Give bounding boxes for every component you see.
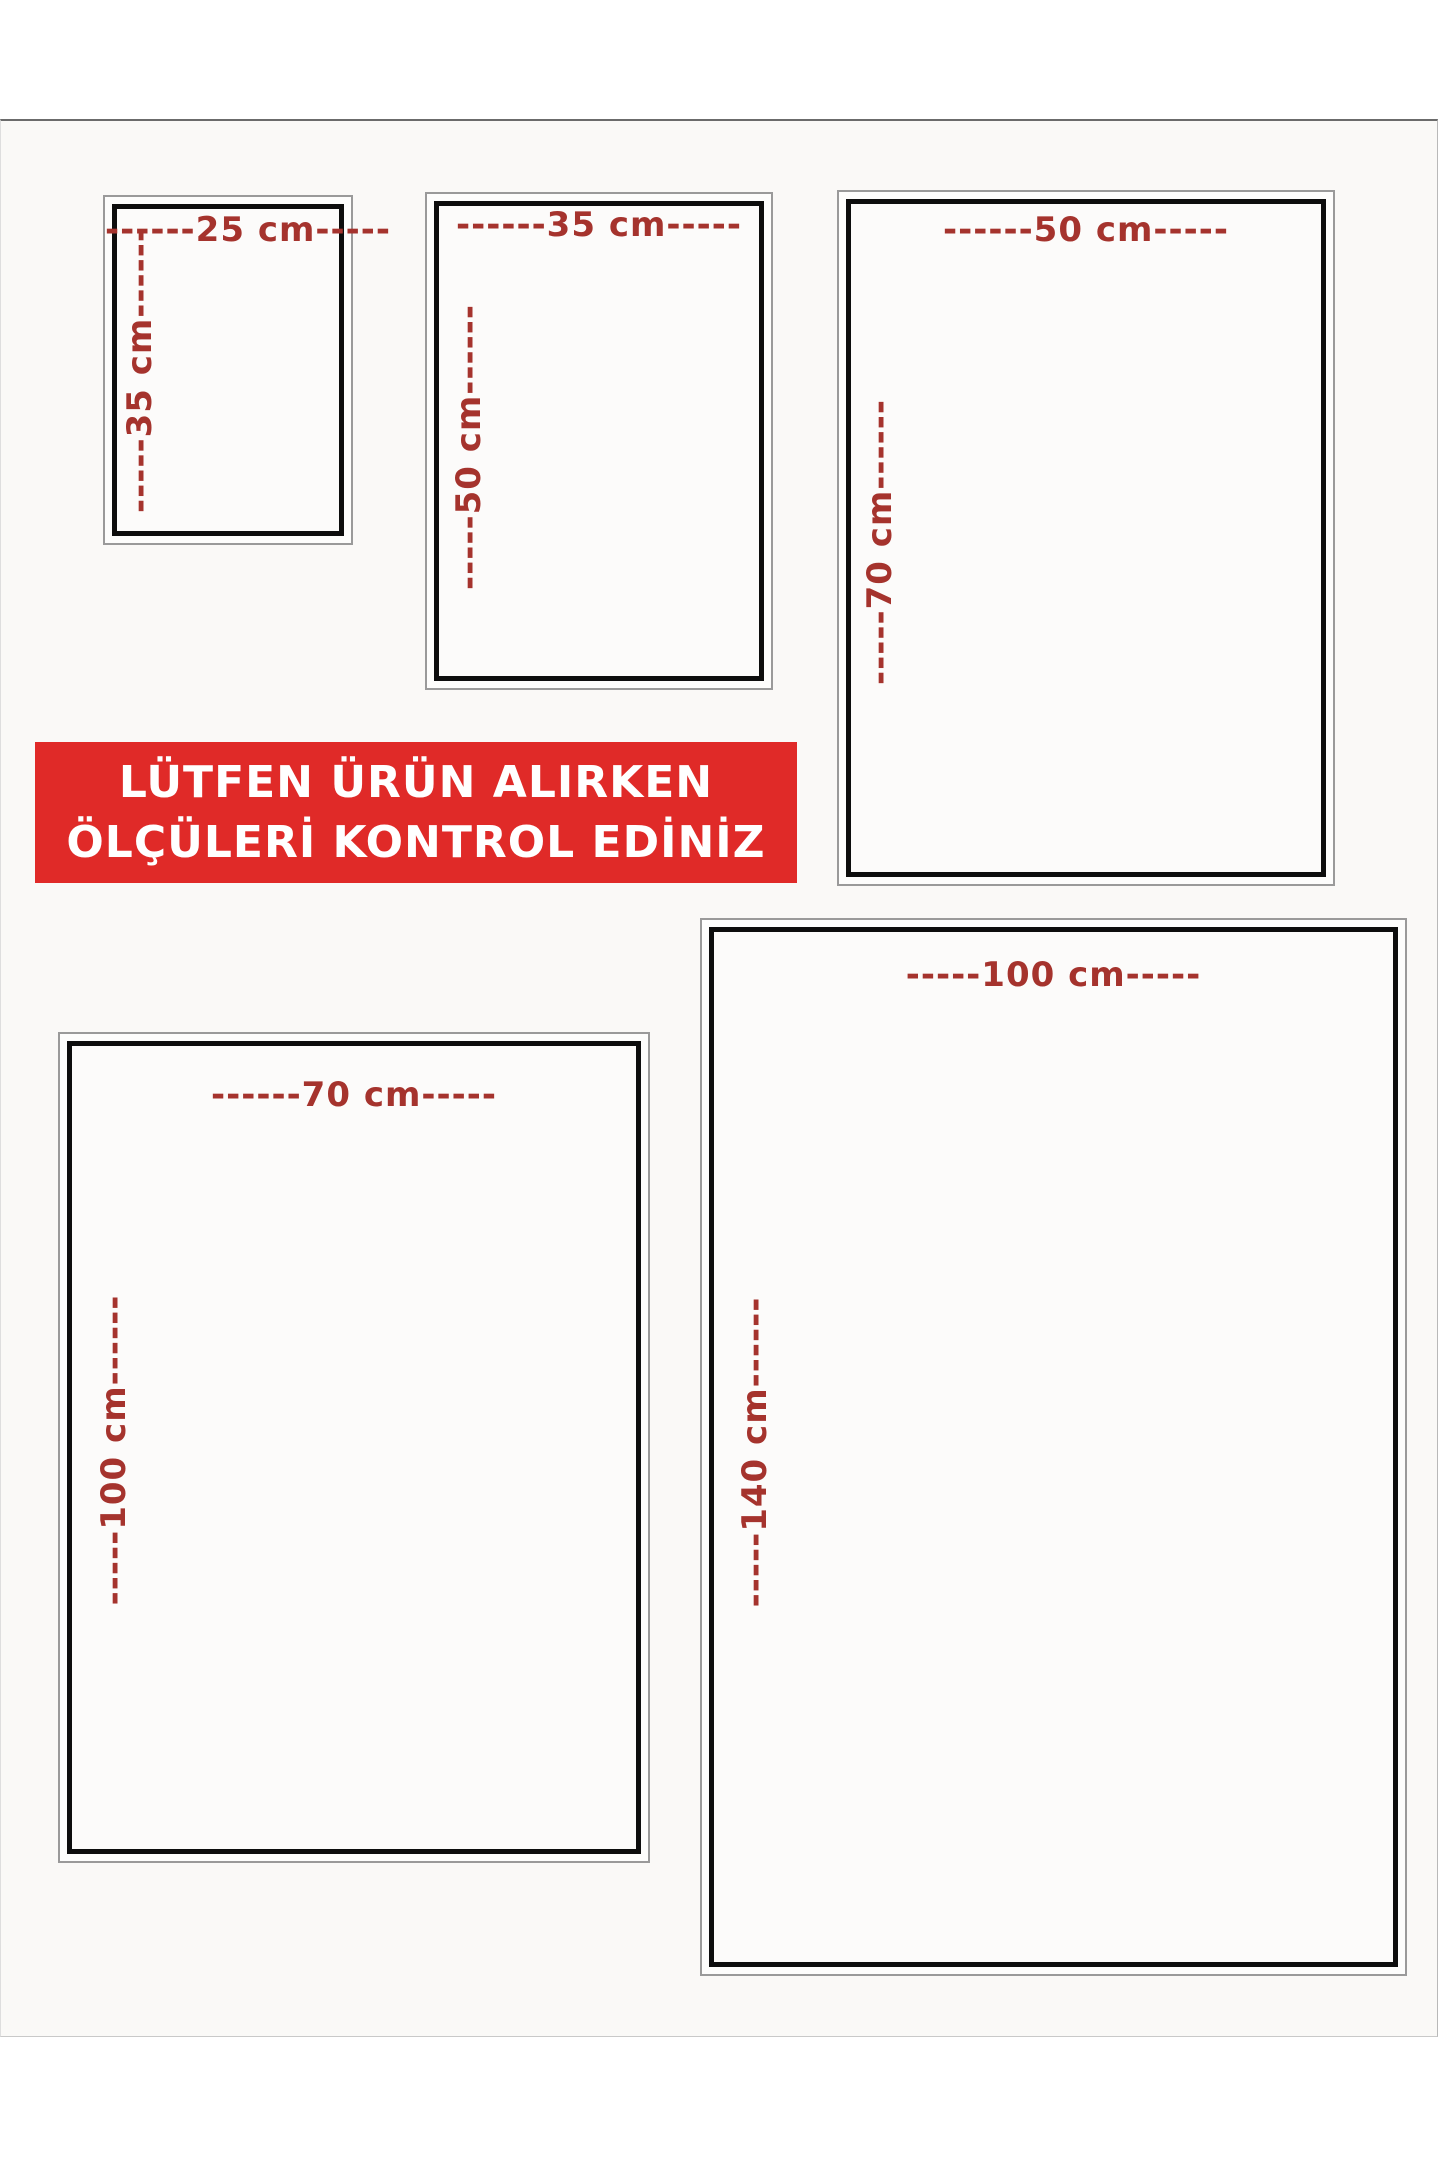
size-box-70x100-frame: [67, 1041, 641, 1854]
size-box-25x35: ------25 cm----- -----35 cm------: [103, 195, 353, 545]
notice-banner: LÜTFEN ÜRÜN ALIRKEN ÖLÇÜLERİ KONTROL EDİ…: [35, 742, 797, 883]
height-dimension-label: -----100 cm------: [94, 1295, 134, 1606]
height-dimension-label: -----35 cm------: [120, 227, 160, 513]
size-box-100x140: -----100 cm----- -----140 cm------: [700, 918, 1407, 1976]
notice-banner-line1: LÜTFEN ÜRÜN ALIRKEN: [119, 753, 713, 813]
width-dimension-label: -----100 cm-----: [702, 955, 1405, 995]
size-box-70x100: ------70 cm----- -----100 cm------: [58, 1032, 650, 1863]
size-box-35x50: ------35 cm----- -----50 cm------: [425, 192, 773, 690]
width-dimension-label: ------70 cm-----: [60, 1075, 648, 1115]
size-guide-image: ------25 cm----- -----35 cm------ ------…: [0, 0, 1440, 2160]
height-dimension-label: -----50 cm------: [449, 304, 489, 590]
notice-banner-line2: ÖLÇÜLERİ KONTROL EDİNİZ: [66, 813, 765, 873]
size-box-50x70-frame: [846, 199, 1326, 877]
width-dimension-label: ------50 cm-----: [839, 210, 1333, 250]
width-dimension-label: ------35 cm-----: [427, 205, 771, 245]
height-dimension-label: -----140 cm------: [735, 1297, 775, 1608]
height-dimension-label: -----70 cm------: [860, 399, 900, 685]
size-box-100x140-frame: [709, 927, 1398, 1967]
size-box-50x70: ------50 cm----- -----70 cm------: [837, 190, 1335, 886]
